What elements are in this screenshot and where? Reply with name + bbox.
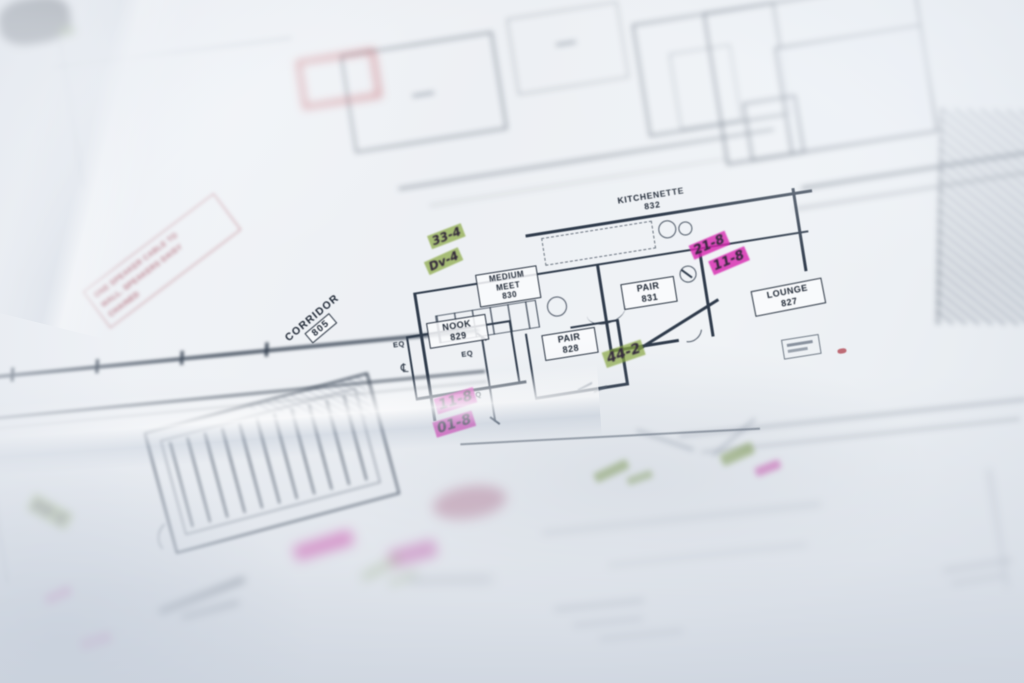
pink-scribble [754, 459, 781, 477]
highlighter-mark-pink: 11-8 [708, 246, 749, 275]
text-smudge [788, 347, 808, 353]
corridor-lines [0, 0, 1024, 683]
room-name: MEDIUM [480, 268, 533, 286]
review-stamp: ONE SPEAKER CABLE TO WALL. SPEAKERS DAIS… [83, 193, 242, 328]
red-mark [837, 348, 847, 354]
dimension-line [481, 337, 496, 422]
foreground-blobs [0, 0, 1024, 683]
floor-line [542, 503, 821, 534]
far-stamps [0, 0, 1024, 683]
text-smudge [943, 558, 1013, 572]
room-number: 830 [483, 287, 536, 305]
floor-line [608, 544, 807, 566]
highlighter-mark-green: 44-2 [602, 339, 646, 367]
dark-squiggle [408, 578, 492, 582]
wall-line [416, 380, 527, 400]
dimension-tick [490, 416, 501, 424]
station-tick [265, 342, 269, 356]
stair-room-wall [144, 372, 401, 554]
wall-line [525, 189, 812, 237]
pencil-chevron [578, 373, 593, 392]
fixture-circle [657, 219, 678, 240]
room-name: NOOK [431, 317, 482, 335]
wall-line [509, 320, 521, 384]
background-linework [0, 0, 1024, 683]
station-tick [95, 359, 99, 373]
room-label-nook: NOOK 829 [426, 314, 489, 349]
pencil-chevron [594, 377, 608, 393]
pink-markup-group: 11-8 01-8 [433, 386, 484, 436]
wall-line [525, 334, 537, 400]
highlighter-mark-pink: 01-8 [432, 410, 476, 437]
green-scribble [626, 470, 653, 486]
room-label-medium-meet: MEDIUM MEET 830 [475, 265, 541, 307]
stair-room [0, 0, 1024, 683]
pink-blob [293, 530, 355, 562]
pink-scribble [43, 585, 73, 606]
room-name: PAIR [547, 330, 592, 348]
corridor-wall [0, 381, 487, 432]
room-outline [340, 31, 508, 153]
corridor-wall [0, 370, 485, 422]
eq-label: EQ [469, 389, 482, 400]
dimension-tick [476, 332, 487, 340]
stair-hatch [243, 376, 374, 451]
room-outline [774, 24, 938, 155]
red-smudge [431, 481, 509, 524]
stamp-line: WALL. SPEAKERS DAISY [98, 211, 225, 311]
wall-line [413, 292, 436, 421]
green-scribble [388, 570, 418, 586]
green-markup-group: 33-4 Dv-4 [426, 221, 474, 271]
text-smudge [412, 91, 434, 97]
highlighter-mark-green: 3-44 [27, 494, 74, 531]
pencil-leader [637, 430, 694, 451]
wall-line [570, 319, 618, 328]
station-tick [11, 367, 15, 381]
wall-line [791, 188, 807, 271]
room-name: MEET [482, 277, 535, 295]
room-number: 828 [548, 340, 593, 358]
wall-line [406, 320, 511, 339]
wall-line [795, 166, 1024, 210]
text-smudge [573, 617, 643, 627]
wall-line [616, 319, 629, 385]
fixture-circle [546, 295, 569, 318]
green-scribble [361, 556, 401, 582]
text-smudge [599, 629, 683, 641]
stamps: ONE SPEAKER CABLE TO WALL. SPEAKERS DAIS… [0, 0, 1024, 683]
centerline-symbol: ℄ [401, 361, 409, 375]
room-name: LOUNGE [756, 280, 819, 302]
room-number: 829 [433, 327, 484, 345]
room-outline [742, 95, 805, 162]
green-markup-group: 44-2 [601, 338, 646, 368]
highlighter-mark-pink: 11-8 [434, 387, 478, 414]
stair-treads [169, 394, 370, 527]
green-scribble [719, 442, 755, 467]
text-smudge [556, 40, 576, 46]
stamp-line: ONE SPEAKER CABLE TO [91, 201, 218, 301]
markup-clusters-mid [0, 0, 1024, 683]
wall-line [596, 265, 612, 349]
red-stamp-box [295, 48, 382, 110]
pink-blob [388, 539, 439, 568]
door-swing-arc [668, 309, 707, 348]
room-name: PAIR [626, 279, 671, 297]
room-number: 805 [305, 313, 337, 343]
highlighter-mark-pink: 21-8 [689, 231, 730, 260]
dark-smudge [0, 0, 74, 49]
room-outline [703, 0, 938, 165]
green-markup-group: 3-44 [27, 493, 74, 530]
markups-sharp: 33-4 Dv-4 21-8 11-8 44-2 11-8 01-8 [0, 0, 1024, 683]
floor-line [679, 398, 1024, 437]
room-label-lounge: LOUNGE 827 [751, 278, 827, 317]
room-label-kitchenette: KITCHENETTE 832 [589, 181, 715, 220]
wall-line [53, 37, 291, 68]
room-outline [669, 44, 742, 130]
pink-scribble [79, 630, 113, 651]
keyed-note-cross [681, 269, 692, 278]
suite: EQ EQ EQ ℄ KITCHENETTE 832 MEDIUM MEET 8… [0, 0, 1024, 683]
floor-line [702, 418, 1020, 453]
foreground-marks: 3-44 [0, 0, 1024, 683]
room-outline [506, 1, 629, 95]
eq-label: EQ [392, 339, 405, 350]
pencil-leader [712, 418, 755, 456]
room-outline [632, 2, 792, 137]
wall-line [535, 382, 629, 400]
stamp-line: CHAINED [106, 220, 233, 320]
counter-dashed [541, 221, 656, 266]
small-keynote-box [781, 334, 822, 360]
wall-line [698, 249, 715, 336]
door-swing-arc [156, 518, 195, 557]
plan-sheet: ONE SPEAKER CABLE TO WALL. SPEAKERS DAIS… [0, 0, 1024, 683]
keyed-note-circle [678, 264, 697, 283]
highlighter-mark-green: Dv-4 [424, 247, 464, 275]
fixture-circle [677, 220, 693, 236]
room-name: KITCHENETTE [589, 181, 713, 210]
wall-line [406, 336, 418, 400]
dark-squiggle [181, 601, 240, 619]
pink-markup-group: 21-8 11-8 [688, 224, 750, 281]
wall-line [801, 146, 1024, 189]
wall-line [57, 29, 84, 187]
room-number: 831 [627, 289, 672, 307]
wall-line [415, 230, 808, 294]
corridor-wall [0, 329, 479, 381]
dark-squiggle [158, 577, 245, 614]
floor-line [460, 428, 760, 446]
green-smudge [57, 24, 76, 38]
room-number: 832 [590, 191, 714, 220]
leader-line [584, 294, 628, 327]
room-number: 827 [758, 291, 821, 313]
room-label-pair-828: PAIR 828 [541, 327, 598, 361]
text-smudge [951, 574, 1005, 585]
text-smudge [787, 340, 813, 347]
wall-line [609, 339, 679, 353]
room-label-corridor: CORRIDOR 805 [266, 278, 367, 369]
wall-line [988, 469, 1009, 588]
room-label-pair-831: PAIR 831 [620, 276, 677, 310]
station-tick [180, 351, 184, 365]
wall-line [430, 158, 726, 206]
blueprint-photo: ONE SPEAKER CABLE TO WALL. SPEAKERS DAIS… [0, 0, 1024, 683]
stair-inner-wall [160, 388, 380, 535]
text-smudge [554, 599, 644, 611]
eq-label: EQ [461, 348, 474, 359]
wall-line [398, 128, 774, 189]
furniture-row [435, 300, 540, 344]
room-name: CORRIDOR [266, 278, 358, 358]
wall-line [0, 357, 9, 584]
highlighter-mark-green: 33-4 [427, 223, 466, 249]
green-scribble [593, 459, 630, 483]
diagonal-wall [637, 298, 719, 351]
hatch-area [937, 108, 1024, 325]
stair-group [135, 366, 411, 561]
